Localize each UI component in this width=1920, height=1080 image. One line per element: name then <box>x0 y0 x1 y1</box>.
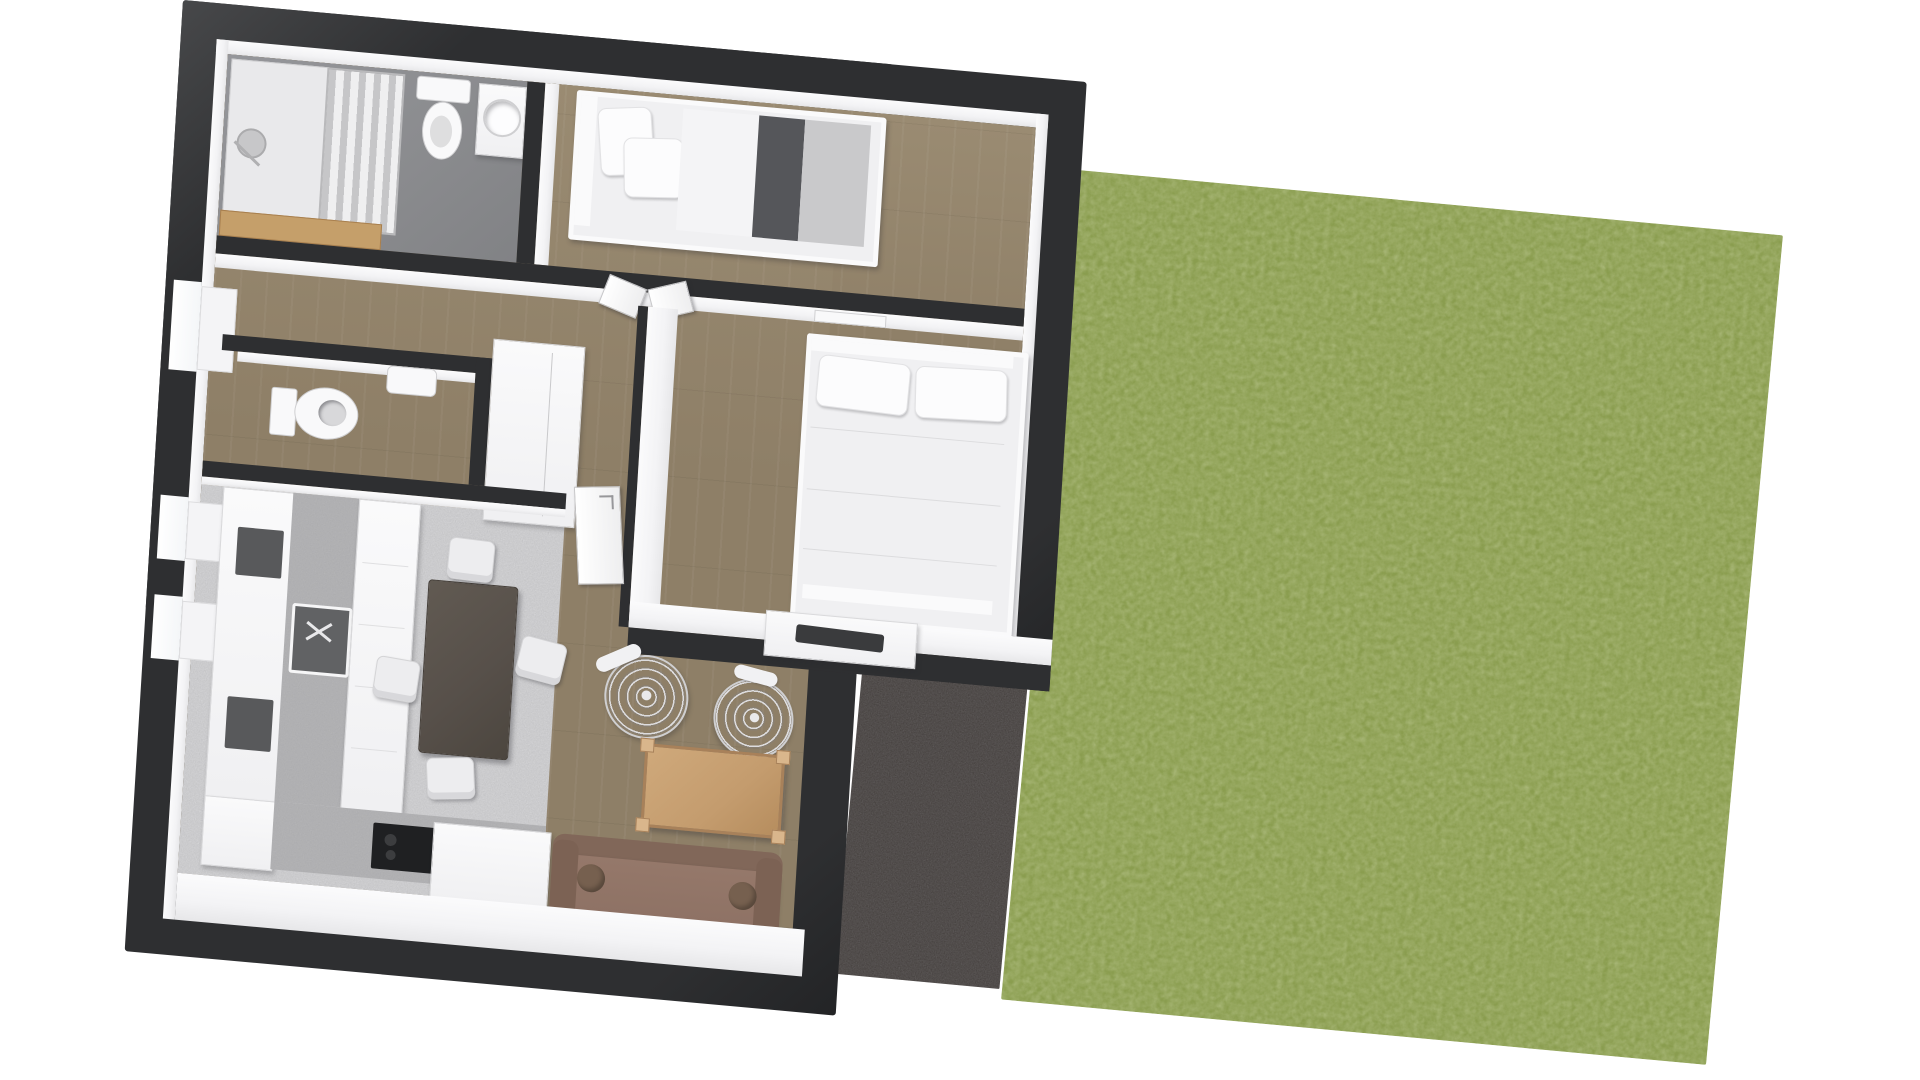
drawer-line-4 <box>351 747 397 752</box>
apartment-building <box>125 0 1087 1033</box>
window-hall-sill <box>196 286 237 373</box>
single-bed-blanket <box>752 115 805 241</box>
double-bed-pillow-left <box>815 354 912 417</box>
window-kitchen-2 <box>151 594 183 660</box>
shower-glass-screen <box>318 67 406 235</box>
dining-chair-left <box>372 655 422 704</box>
single-bed-mattress <box>798 120 871 247</box>
burner-3 <box>385 850 396 861</box>
double-bed-pillow-right <box>914 366 1007 423</box>
coffee-table <box>640 743 785 839</box>
wc-wall-basin <box>386 365 438 397</box>
coffee-table-leg-1 <box>640 738 655 753</box>
dining-table <box>418 579 518 760</box>
kitchen-sink <box>288 603 352 678</box>
coffee-table-leg-2 <box>776 750 791 765</box>
oven-front <box>235 527 284 579</box>
coffee-table-leg-4 <box>771 830 786 845</box>
drawer-line-2 <box>359 624 405 629</box>
appliance-front <box>224 696 273 752</box>
drawer-line-1 <box>362 562 408 567</box>
double-bed-fold-2 <box>807 488 1001 507</box>
double-bed-fold-3 <box>803 548 997 567</box>
toilet-tank-bathroom <box>416 75 471 104</box>
tv <box>795 624 884 653</box>
double-bed-fold-1 <box>810 426 1004 445</box>
coffee-table-leg-3 <box>635 817 650 832</box>
single-bed <box>568 90 887 267</box>
burner-1 <box>384 833 397 846</box>
kitchen-corner-cabinet <box>200 795 276 871</box>
single-bed-duvet <box>676 109 759 237</box>
bedroom2-door <box>574 486 624 585</box>
door-handle-icon <box>599 495 614 509</box>
single-bed-headboard <box>574 95 598 226</box>
dining-chair-top <box>446 536 496 583</box>
floor-plan-scene <box>0 0 1920 1080</box>
double-bed <box>790 333 1029 638</box>
window-kitchen-1 <box>157 495 189 561</box>
lawn-grass-area <box>1001 170 1783 1065</box>
double-bed-footboard <box>802 584 993 615</box>
single-bed-pillow-2 <box>623 137 684 198</box>
dining-chair-bottom <box>426 757 476 800</box>
